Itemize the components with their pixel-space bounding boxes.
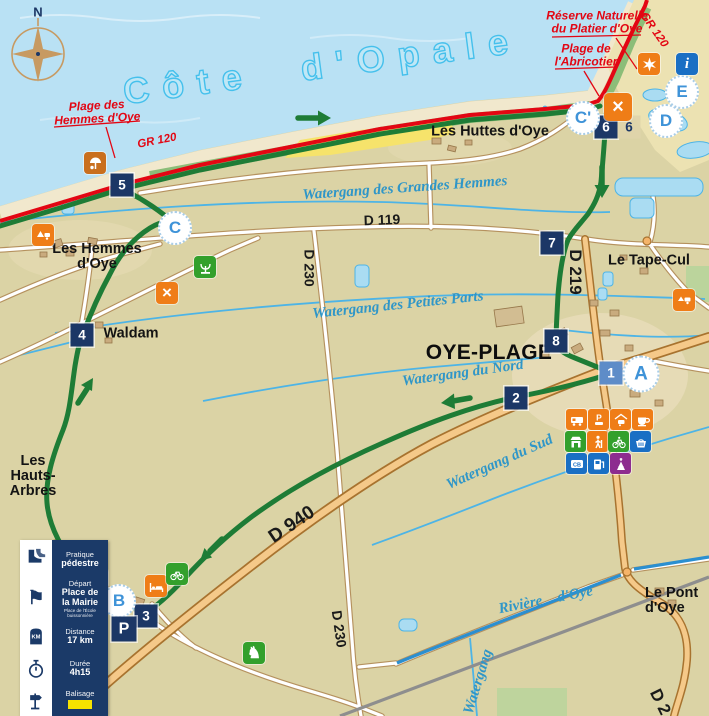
waypoint-1: 1 xyxy=(600,362,623,385)
flag-icon: ⚑ xyxy=(27,576,44,620)
place-pont-oye-line1: Le Pont xyxy=(645,586,698,601)
milestone-icon-text: KM xyxy=(31,635,40,641)
place-waldam: Waldam xyxy=(103,326,158,341)
accueil-velo-icon xyxy=(166,563,188,585)
waypoint-4: 4 xyxy=(71,324,94,347)
nature-garden-icon xyxy=(194,256,216,278)
place-pont-oye-line2: d'Oye xyxy=(645,601,698,616)
legend-distance: Distance 17 km xyxy=(55,621,105,652)
poi-letter-e: E xyxy=(665,75,699,109)
poi-letter-d: D xyxy=(649,104,683,138)
shopping-icon xyxy=(630,431,651,452)
church-icon xyxy=(610,453,631,474)
place-les-hemmes: Les Hemmes d'Oye xyxy=(52,242,141,272)
svg-text:P: P xyxy=(596,413,602,423)
road-label-d230-north: D 230 xyxy=(302,249,317,286)
beach-label-hemmes: Plage des Hemmes d'Oye xyxy=(53,97,140,127)
legend-depart-value2: la Mairie xyxy=(62,598,98,608)
legend-panel: ⚑ KM Pratique pédestre Départ Place de l… xyxy=(20,540,108,716)
horse-riding-icon: ♞ xyxy=(243,642,265,664)
legend-waymark-label: Balisage xyxy=(66,689,95,698)
legend-waymark: Balisage xyxy=(55,685,105,713)
nature-reserve-label-line1: Réserve Naturelle xyxy=(546,9,647,22)
nature-reserve-label: Réserve Naturelle du Platier d'Oye xyxy=(546,9,647,34)
atm-icon: CB xyxy=(566,453,587,474)
legend-distance-value: 17 km xyxy=(67,636,93,646)
legend-text-column: Pratique pédestre Départ Place de la Mai… xyxy=(52,540,108,716)
waypoint-8: 8 xyxy=(545,330,568,353)
road-label-d119: D 119 xyxy=(363,212,400,228)
campervan-area-icon xyxy=(673,289,695,311)
place-les-huttes: Les Huttes d'Oye xyxy=(431,124,549,139)
poi-letter-c: C xyxy=(158,211,192,245)
hotel-icon xyxy=(145,575,167,597)
waypoint-5: 5 xyxy=(111,174,134,197)
place-hauts-arbres-line3: Arbres xyxy=(10,485,57,500)
signpost-icon xyxy=(26,686,46,716)
legend-distance-label: Distance xyxy=(65,627,94,636)
motorhome-icon xyxy=(566,409,587,430)
restaurant-icon: × xyxy=(156,282,178,304)
cafe-icon xyxy=(632,409,653,430)
legend-icon-column: ⚑ KM xyxy=(20,540,52,716)
beach-label-abricotier-line2: l'Abricotier xyxy=(555,55,618,68)
info-icon: i xyxy=(676,53,698,75)
place-tape-cul: Le Tape-Cul xyxy=(608,253,690,268)
place-hauts-arbres-line1: Les xyxy=(10,454,57,469)
beach-label-abricotier: Plage de l'Abricotier xyxy=(555,42,618,67)
legend-depart-label: Départ xyxy=(69,579,92,588)
legend-practice: Pratique pédestre xyxy=(55,543,105,576)
place-les-hemmes-line1: Les Hemmes xyxy=(52,242,141,257)
legend-practice-label: Pratique xyxy=(66,550,94,559)
atm-icon-text: CB xyxy=(573,462,581,468)
campsite-icon xyxy=(32,224,54,246)
boots-icon xyxy=(25,540,47,576)
nature-reserve-label-line2: du Platier d'Oye xyxy=(546,22,647,35)
motorhome-shelter-icon xyxy=(610,409,631,430)
fuel-icon xyxy=(588,453,609,474)
legend-depart-note2: buissonnière xyxy=(67,613,93,618)
waymark-color-swatch xyxy=(68,700,92,709)
beach-icon xyxy=(84,152,106,174)
waypoint-2: 2 xyxy=(505,387,528,410)
legend-duration: Durée 4h15 xyxy=(55,652,105,685)
stopwatch-icon xyxy=(26,652,46,686)
place-hauts-arbres: Les Hauts- Arbres xyxy=(10,454,57,500)
place-hauts-arbres-line2: Hauts- xyxy=(10,469,57,484)
motorhome-parking-icon: P xyxy=(588,409,609,430)
orientation-table-icon xyxy=(638,53,660,75)
road-label-d219: D 219 xyxy=(566,249,584,294)
waypoint-7: 7 xyxy=(541,232,564,255)
parking-icon: P xyxy=(112,617,137,642)
place-pont-oye: Le Pont d'Oye xyxy=(645,586,698,616)
legend-duration-label: Durée xyxy=(70,659,90,668)
poi-letter-c-prime: C' xyxy=(566,101,600,135)
market-icon xyxy=(565,431,586,452)
legend-duration-value: 4h15 xyxy=(70,668,91,678)
cycling-icon xyxy=(608,431,629,452)
legend-practice-value: pédestre xyxy=(61,559,99,569)
compass-north-label: N xyxy=(33,5,42,20)
beach-label-abricotier-line1: Plage de xyxy=(555,42,618,55)
place-les-hemmes-line2: d'Oye xyxy=(52,257,141,272)
milestone-icon: KM xyxy=(26,620,46,652)
hiking-map: Côte d'Opale N Plage des Hemmes d'Oye GR… xyxy=(0,0,709,716)
legend-depart: Départ Place de la Mairie Place de l'Éco… xyxy=(55,576,105,621)
poi-letter-a: A xyxy=(623,356,660,393)
hiking-icon xyxy=(587,431,608,452)
trail-crossing-icon: × xyxy=(604,93,632,121)
waypoint-3: 3 xyxy=(135,605,158,628)
